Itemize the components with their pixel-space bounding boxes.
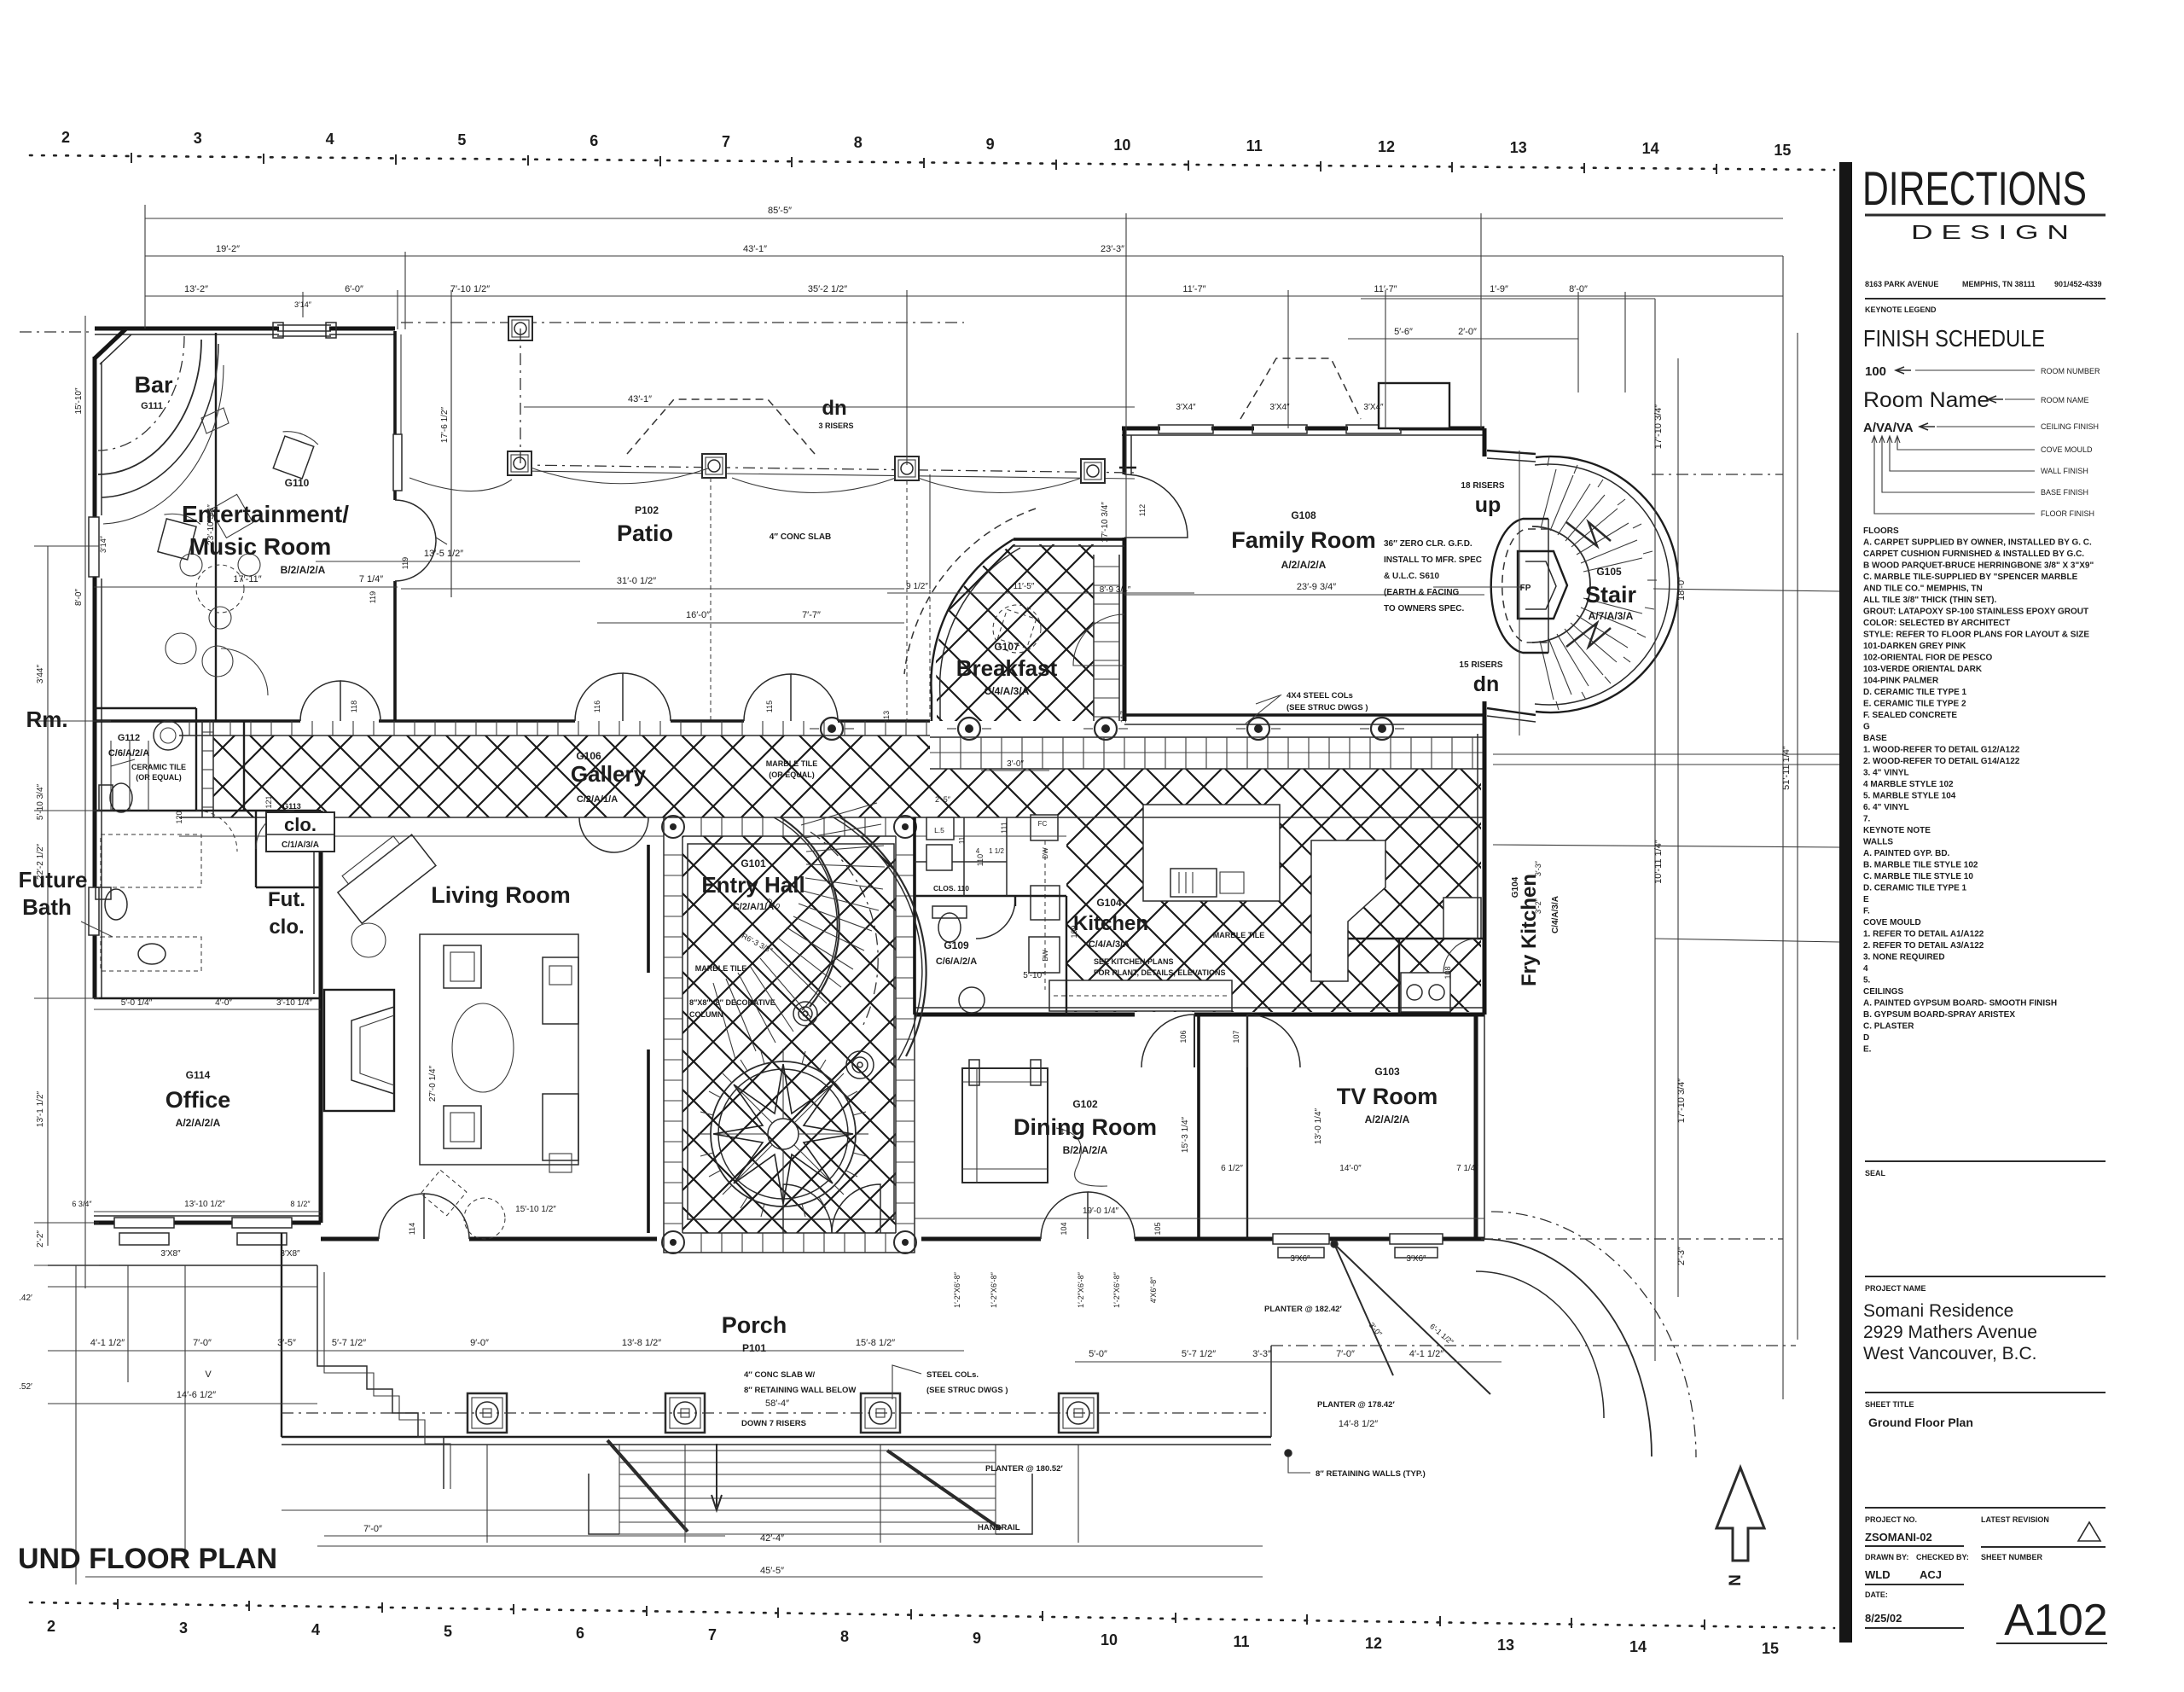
svg-text:Dining Room: Dining Room [1014,1114,1157,1140]
svg-text:11′-5″: 11′-5″ [1014,582,1035,591]
svg-text:LATEST REVISION: LATEST REVISION [1981,1515,2049,1524]
svg-text:13′-0 1/4″: 13′-0 1/4″ [1314,1108,1323,1144]
svg-text:E. CERAMIC TILE TYPE 2: E. CERAMIC TILE TYPE 2 [1863,700,1966,709]
svg-text:3: 3 [194,130,202,147]
svg-text:MEMPHIS, TN 38111: MEMPHIS, TN 38111 [1962,280,2036,288]
svg-text:clo.: clo. [269,916,304,939]
svg-text:2. REFER TO DETAIL A3/A122: 2. REFER TO DETAIL A3/A122 [1863,941,1984,951]
svg-text:WLD: WLD [1865,1568,1891,1581]
svg-text:GROUT: LATAPOXY SP-100 STAINLE: GROUT: LATAPOXY SP-100 STAINLESS EPOXY G… [1863,608,2088,617]
svg-text:DIRECTIONS: DIRECTIONS [1862,161,2087,215]
svg-text:100: 100 [1865,364,1886,379]
svg-text:DW: DW [1042,950,1049,962]
svg-text:3′-10 1/4″: 3′-10 1/4″ [276,998,313,1008]
svg-text:11′-7″: 11′-7″ [1182,284,1205,294]
svg-text:3′X4″: 3′X4″ [1363,403,1384,412]
svg-text:ALL TILE 3/8" THICK (THIN SET): ALL TILE 3/8" THICK (THIN SET). [1863,596,1996,605]
svg-text:G101: G101 [741,858,766,869]
svg-text:(SEE STRUC DWGS ): (SEE STRUC DWGS ) [926,1386,1008,1395]
svg-text:G: G [1863,723,1870,732]
svg-text:MARBLE TILE: MARBLE TILE [695,964,747,973]
svg-text:8 1/2″: 8 1/2″ [290,1200,311,1208]
svg-text:7.: 7. [1863,815,1871,824]
svg-text:8′-0″: 8′-0″ [74,589,84,606]
svg-text:2′-0″: 2′-0″ [1458,327,1477,337]
svg-text:13′-10 1/2″: 13′-10 1/2″ [184,1200,225,1209]
svg-text:WALLS: WALLS [1863,838,1893,847]
svg-text:27′-0 1/4″: 27′-0 1/4″ [428,1065,438,1102]
svg-text:G107: G107 [994,641,1019,653]
svg-text:10: 10 [1101,1631,1118,1648]
svg-text:1′-2″X6′-8″: 1′-2″X6′-8″ [1077,1271,1085,1308]
svg-text:5′-6″: 5′-6″ [1394,327,1413,337]
svg-text:7: 7 [722,133,730,150]
svg-text:13′-1 1/2″: 13′-1 1/2″ [36,1090,45,1127]
svg-text:17′-11″: 17′-11″ [233,574,261,584]
svg-text:F. SEALED CONCRETE: F. SEALED CONCRETE [1863,711,1957,720]
svg-text:SHEET TITLE: SHEET TITLE [1865,1400,1914,1409]
svg-text:INSTALL TO MFR. SPEC: INSTALL TO MFR. SPEC [1384,555,1482,565]
svg-text:9 1/2″: 9 1/2″ [906,582,928,591]
svg-text:2: 2 [47,1618,55,1635]
svg-text:COVE MOULD: COVE MOULD [1863,918,1921,927]
svg-text:5: 5 [444,1623,452,1640]
svg-text:FC: FC [1038,820,1048,828]
svg-text:6 1/2″: 6 1/2″ [1221,1164,1243,1173]
svg-text:4″ CONC SLAB W/: 4″ CONC SLAB W/ [744,1370,816,1380]
svg-text:51′-11 1/4″: 51′-11 1/4″ [1781,746,1792,790]
svg-text:1 1/2: 1 1/2 [989,847,1004,855]
svg-text:up: up [1475,493,1501,517]
svg-text:7′-0″: 7′-0″ [1336,1349,1355,1359]
svg-text:10: 10 [1113,137,1130,154]
svg-text:104-PINK PALMER: 104-PINK PALMER [1863,677,1939,686]
svg-text:9: 9 [973,1630,981,1647]
svg-text:B/2/A/2/A: B/2/A/2/A [1063,1144,1108,1156]
svg-text:B WOOD PARQUET-BRUCE HERRINGB: B WOOD PARQUET-BRUCE HERRINGBONE 3/8" X … [1863,561,2094,571]
svg-text:3′X8″: 3′X8″ [280,1249,300,1259]
svg-text:14′-6 1/2″: 14′-6 1/2″ [177,1390,216,1400]
svg-text:11: 11 [958,836,966,844]
svg-text:6. 4" VINYL: 6. 4" VINYL [1863,803,1909,812]
svg-text:5.: 5. [1863,976,1871,986]
svg-text:A/7/A/3/A: A/7/A/3/A [1589,610,1634,622]
svg-text:108: 108 [1443,966,1452,979]
svg-text:13: 13 [1497,1637,1514,1654]
svg-text:105: 105 [1153,1222,1162,1235]
svg-text:Somani Residence: Somani Residence [1863,1301,2013,1321]
svg-text:G110: G110 [285,477,310,489]
svg-text:17′-6 1/2″: 17′-6 1/2″ [440,406,450,443]
svg-text:13′-2″: 13′-2″ [184,284,208,294]
svg-text:3′-0″: 3′-0″ [1368,1321,1385,1339]
svg-text:8′-9 3/4″: 8′-9 3/4″ [1100,585,1131,595]
svg-text:14: 14 [1629,1638,1647,1655]
svg-text:7 1/4″: 7 1/4″ [1456,1164,1478,1173]
svg-text:116: 116 [593,701,601,712]
svg-text:12: 12 [1365,1635,1382,1652]
svg-text:WALL FINISH: WALL FINISH [2041,467,2088,475]
svg-text:FOR PLANT, DETAILS, ELEVATIONS: FOR PLANT, DETAILS, ELEVATIONS [1094,968,1226,977]
svg-text:C/4/A/3/A: C/4/A/3/A [1551,896,1560,933]
svg-text:CEILINGS: CEILINGS [1863,987,1904,997]
svg-text:3′14″: 3′14″ [99,535,107,553]
svg-text:15′-10 1/2″: 15′-10 1/2″ [515,1205,556,1214]
svg-text:V: V [205,1369,212,1380]
svg-text:114: 114 [408,1223,416,1235]
svg-text:DOWN 7 RISERS: DOWN 7 RISERS [741,1419,806,1428]
svg-text:7′-10 1/2″: 7′-10 1/2″ [450,284,490,294]
svg-text:23′-3″: 23′-3″ [1101,244,1124,254]
svg-text:15: 15 [1762,1640,1779,1657]
svg-text:B. GYPSUM BOARD-SPRAY ARISTEX: B. GYPSUM BOARD-SPRAY ARISTEX [1863,1010,2015,1020]
svg-text:14: 14 [1642,140,1659,157]
svg-text:FLOOR FINISH: FLOOR FINISH [2041,509,2094,518]
svg-text:Patio: Patio [617,520,673,546]
svg-text:6′-0″: 6′-0″ [345,284,363,294]
svg-text:19′-0 1/4″: 19′-0 1/4″ [1083,1206,1119,1216]
svg-text:A. PAINTED GYPSUM BOARD- SMOOT: A. PAINTED GYPSUM BOARD- SMOOTH FINISH [1863,999,2057,1009]
svg-text:3′-3″: 3′-3″ [1252,1349,1271,1359]
svg-text:7′-0″: 7′-0″ [193,1338,212,1348]
svg-text:2929 Mathers Avenue: 2929 Mathers Avenue [1863,1323,2037,1342]
svg-text:3′-5″: 3′-5″ [277,1338,296,1348]
svg-text:3′44″: 3′44″ [36,664,45,683]
svg-text:7′-0″: 7′-0″ [363,1524,382,1534]
svg-text:C/4/A/3/A: C/4/A/3/A [985,685,1030,697]
svg-text:6 3/4″: 6 3/4″ [72,1200,92,1208]
svg-text:PROJECT NO.: PROJECT NO. [1865,1515,1917,1524]
svg-text:A/2/A/2/A: A/2/A/2/A [1365,1113,1410,1125]
svg-text:5′-7 1/2″: 5′-7 1/2″ [1182,1349,1216,1359]
svg-text:15′-3 1/4″: 15′-3 1/4″ [1181,1116,1190,1153]
svg-text:G109: G109 [944,939,969,951]
svg-text:BASE: BASE [1863,734,1887,743]
svg-text:ROOM NUMBER: ROOM NUMBER [2041,367,2100,375]
svg-text:13′-5 1/2″: 13′-5 1/2″ [424,549,463,559]
svg-text:TO OWNERS SPEC.: TO OWNERS SPEC. [1384,604,1464,613]
svg-text:C/4/A/3/A: C/4/A/3/A [1089,939,1130,950]
svg-text:2′-3″: 2′-3″ [1676,1247,1687,1265]
svg-text:1. REFER TO DETAIL A1/A122: 1. REFER TO DETAIL A1/A122 [1863,930,1984,939]
svg-text:Entertainment/: Entertainment/ [182,501,349,527]
svg-text:(OR EQUAL): (OR EQUAL) [769,770,815,779]
svg-text:clo.: clo. [284,814,317,835]
svg-text:G104: G104 [1511,876,1520,898]
svg-text:G108: G108 [1291,509,1316,521]
svg-text:ROOM NAME: ROOM NAME [2041,396,2089,404]
svg-text:F.: F. [1863,907,1870,916]
svg-text:Bar: Bar [134,372,173,398]
svg-text:G111: G111 [141,401,163,411]
svg-text:58′-4″: 58′-4″ [765,1398,789,1409]
svg-text:3′X6″: 3′X6″ [1290,1254,1310,1264]
svg-text:(SEE STRUC DWGS ): (SEE STRUC DWGS ) [1287,703,1368,712]
svg-text:A/VA/VA: A/VA/VA [1863,421,1914,435]
svg-text:West Vancouver, B.C.: West Vancouver, B.C. [1863,1344,2036,1363]
svg-text:FLOORS: FLOORS [1863,526,1899,536]
svg-text:16′-0″: 16′-0″ [686,610,710,620]
svg-text:C/2/A/1/A: C/2/A/1/A [577,794,618,805]
svg-text:4′-0″: 4′-0″ [215,998,232,1008]
svg-text:106: 106 [1179,1030,1188,1043]
svg-text:G106: G106 [576,750,601,762]
svg-text:118: 118 [350,701,358,712]
svg-text:G104: G104 [1096,897,1122,909]
svg-text:2: 2 [61,129,70,146]
svg-text:110: 110 [976,854,985,866]
svg-text:G105: G105 [1596,566,1622,578]
svg-text:A. PAINTED GYP. BD.: A. PAINTED GYP. BD. [1863,849,1950,858]
svg-text:5′-10 3/4″: 5′-10 3/4″ [36,783,45,820]
svg-text:14′-8 1/2″: 14′-8 1/2″ [1339,1419,1378,1429]
svg-text:COLOR: SELECTED BY ARCHITECT: COLOR: SELECTED BY ARCHITECT [1863,619,2010,628]
svg-text:A102: A102 [2004,1596,2107,1645]
svg-text:15′-8 1/2″: 15′-8 1/2″ [856,1338,895,1348]
svg-text:11: 11 [1246,137,1263,154]
svg-text:45′-5″: 45′-5″ [760,1566,784,1576]
svg-text:43′-1″: 43′-1″ [743,244,767,254]
svg-text:Porch: Porch [722,1312,787,1338]
svg-text:CARPET CUSHION FURNISHED & INS: CARPET CUSHION FURNISHED & INSTALLED BY … [1863,549,2084,559]
svg-text:102-ORIENTAL FIOR DE PESCO: 102-ORIENTAL FIOR DE PESCO [1863,654,1993,663]
svg-text:Fry Kitchen: Fry Kitchen [1518,874,1541,986]
svg-text:DATE:: DATE: [1865,1590,1888,1599]
svg-text:N: N [1727,1574,1745,1586]
svg-text:Office: Office [166,1087,231,1113]
svg-text:& U.L.C. S610: & U.L.C. S610 [1384,572,1439,581]
svg-text:17′-10 3/4″: 17′-10 3/4″ [1653,404,1664,450]
svg-text:13′-8 1/2″: 13′-8 1/2″ [622,1338,661,1348]
svg-text:Bath: Bath [22,894,72,920]
svg-text:5. MARBLE STYLE 104: 5. MARBLE STYLE 104 [1863,792,1956,801]
svg-text:42′-4″: 42′-4″ [760,1533,784,1544]
svg-text:14′-0″: 14′-0″ [1339,1164,1362,1173]
svg-text:Living Room: Living Room [431,882,571,908]
svg-text:D. CERAMIC TILE TYPE 1: D. CERAMIC TILE TYPE 1 [1863,688,1967,697]
svg-text:FP: FP [1520,584,1531,593]
svg-text:SHEET NUMBER: SHEET NUMBER [1981,1553,2043,1561]
svg-text:B. MARBLE TILE STYLE 102: B. MARBLE TILE STYLE 102 [1863,861,1978,870]
svg-text:TV Room: TV Room [1337,1084,1438,1109]
svg-text:4: 4 [976,847,980,855]
svg-text:Entry Hall: Entry Hall [701,872,804,898]
svg-text:ACJ: ACJ [1920,1568,1942,1581]
svg-text:23′-9 3/4″: 23′-9 3/4″ [1297,582,1336,592]
svg-text:3: 3 [179,1619,188,1637]
svg-text:UND FLOOR PLAN: UND FLOOR PLAN [18,1543,277,1575]
svg-text:1′-2″X6′-8″: 1′-2″X6′-8″ [1112,1271,1121,1308]
svg-text:4 MARBLE STYLE 102: 4 MARBLE STYLE 102 [1863,780,1954,789]
svg-text:P101: P101 [742,1342,766,1354]
svg-text:PLANTER @ 180.52′: PLANTER @ 180.52′ [985,1464,1063,1474]
svg-text:C/2/A/1/A: C/2/A/1/A [733,902,774,912]
svg-text:4′-1 1/2″: 4′-1 1/2″ [1409,1349,1443,1359]
svg-text:CERAMIC TILE: CERAMIC TILE [131,763,186,771]
svg-text:113: 113 [882,711,891,723]
svg-text:C. MARBLE TILE STYLE 10: C. MARBLE TILE STYLE 10 [1863,872,1973,881]
svg-text:4X4 STEEL COLs: 4X4 STEEL COLs [1287,691,1353,701]
svg-text:CHECKED BY:: CHECKED BY: [1916,1553,1969,1561]
svg-text:Fut.: Fut. [268,888,305,911]
svg-text:D. CERAMIC TILE TYPE 1: D. CERAMIC TILE TYPE 1 [1863,884,1967,893]
svg-text:dn: dn [1473,672,1500,696]
svg-text:111: 111 [1000,822,1008,834]
svg-text:2. WOOD-REFER TO DETAIL G14/A1: 2. WOOD-REFER TO DETAIL G14/A122 [1863,757,2020,766]
svg-text:KEYNOTE NOTE: KEYNOTE NOTE [1863,826,1931,835]
svg-text:19′-2″: 19′-2″ [216,244,240,254]
svg-text:dn: dn [822,397,846,420]
svg-text:STEEL COLs.: STEEL COLs. [926,1370,979,1380]
svg-text:(EARTH & FACING: (EARTH & FACING [1384,588,1460,597]
svg-text:4: 4 [326,131,334,148]
svg-text:Gallery: Gallery [571,761,647,787]
svg-text:1′-2″X6′-8″: 1′-2″X6′-8″ [953,1271,961,1308]
svg-text:A/2/A/2/A: A/2/A/2/A [176,1117,221,1129]
svg-text:8: 8 [840,1628,849,1645]
svg-text:13: 13 [1510,139,1527,156]
svg-text:3 RISERS: 3 RISERS [818,422,853,430]
svg-text:85′-5″: 85′-5″ [768,206,792,216]
svg-text:901/452-4339: 901/452-4339 [2054,280,2102,288]
svg-text:17′-10 3/4″: 17′-10 3/4″ [1101,502,1110,543]
svg-text:AND TILE CO." MEMPHIS, TN: AND TILE CO." MEMPHIS, TN [1863,584,1983,594]
svg-text:7 1/4″: 7 1/4″ [359,574,383,584]
svg-text:2′-5″: 2′-5″ [935,795,951,804]
svg-text:4″ CONC SLAB: 4″ CONC SLAB [770,532,832,542]
svg-text:9′-0″: 9′-0″ [470,1338,489,1348]
svg-text:KEYNOTE LEGEND: KEYNOTE LEGEND [1865,305,1937,314]
svg-text:Rm.: Rm. [26,706,67,732]
svg-text:8″ RETAINING WALL BELOW: 8″ RETAINING WALL BELOW [744,1386,856,1395]
svg-text:3′X8″: 3′X8″ [160,1249,181,1259]
svg-text:SEAL: SEAL [1865,1169,1886,1177]
svg-text:115: 115 [765,701,774,712]
svg-text:G114: G114 [186,1069,211,1081]
svg-text:15: 15 [1774,142,1791,159]
svg-text:11: 11 [1233,1633,1249,1650]
svg-text:Music Room: Music Room [189,533,331,560]
svg-text:A/2/A/2/A: A/2/A/2/A [1281,559,1327,571]
svg-text:3. 4" VINYL: 3. 4" VINYL [1863,769,1909,778]
svg-text:109: 109 [1070,925,1078,938]
svg-text:6′-1 1/2″: 6′-1 1/2″ [1428,1322,1455,1346]
svg-text:10′-11 1/4″: 10′-11 1/4″ [1653,840,1664,884]
svg-text:36″ ZERO CLR. G.F.D.: 36″ ZERO CLR. G.F.D. [1384,539,1472,549]
svg-text:31′-0 1/2″: 31′-0 1/2″ [617,576,656,586]
svg-text:5′-0 1/4″: 5′-0 1/4″ [121,998,153,1008]
svg-text:8: 8 [854,134,863,151]
svg-text:Breakfast: Breakfast [956,655,1058,681]
svg-text:3′X6″: 3′X6″ [1406,1254,1426,1264]
svg-text:A. CARPET SUPPLIED BY OWNER, I: A. CARPET SUPPLIED BY OWNER, INSTALLED B… [1863,538,2092,548]
svg-text:3′-0″: 3′-0″ [1007,759,1024,769]
svg-text:8″ RETAINING WALLS (TYP.): 8″ RETAINING WALLS (TYP.) [1316,1469,1426,1479]
svg-text:PROJECT NAME: PROJECT NAME [1865,1284,1926,1293]
svg-text:103-VERDE ORIENTAL DARK: 103-VERDE ORIENTAL DARK [1863,665,1983,674]
svg-text:SEE KITCHEN PLANS: SEE KITCHEN PLANS [1094,957,1174,966]
svg-text:CLOS. 110: CLOS. 110 [933,884,969,893]
svg-text:MARBLE TILE: MARBLE TILE [766,759,818,768]
svg-text:MARBLE TILE: MARBLE TILE [1213,931,1265,939]
svg-text:(OR EQUAL): (OR EQUAL) [136,773,182,782]
svg-text:C. PLASTER: C. PLASTER [1863,1022,1914,1032]
svg-text:C/6/A/2/A: C/6/A/2/A [108,748,149,759]
svg-text:E.: E. [1863,1045,1872,1055]
svg-text:119: 119 [369,591,377,603]
svg-text:5: 5 [457,131,466,148]
svg-text:6: 6 [576,1625,584,1642]
svg-text:.42′: .42′ [19,1294,32,1303]
svg-text:CEILING FINISH: CEILING FINISH [2041,422,2099,431]
svg-text:4′X6′-8″: 4′X6′-8″ [1149,1276,1158,1303]
svg-text:ZSOMANI-02: ZSOMANI-02 [1865,1531,1932,1544]
svg-text:C. MARBLE TILE-SUPPLIED BY "SP: C. MARBLE TILE-SUPPLIED BY "SPENCER MARB… [1863,573,2078,582]
svg-text:15′-10″: 15′-10″ [74,387,84,414]
svg-text:G113: G113 [282,802,301,811]
svg-text:18′-0″: 18′-0″ [1676,577,1687,601]
svg-text:Kitchen: Kitchen [1073,912,1148,935]
svg-text:.52′: .52′ [19,1382,32,1392]
svg-text:4: 4 [1863,964,1868,974]
svg-text:COLUMN: COLUMN [689,1010,723,1019]
svg-text:3′X4″: 3′X4″ [1176,403,1196,412]
svg-text:117: 117 [1119,711,1128,723]
svg-text:HANDRAIL: HANDRAIL [978,1523,1020,1532]
svg-text:PLANTER @ 182.42′: PLANTER @ 182.42′ [1264,1305,1342,1314]
svg-text:18 RISERS: 18 RISERS [1461,481,1504,491]
svg-text:17′-10 3/4″: 17′-10 3/4″ [1676,1079,1687,1124]
svg-text:7′-7″: 7′-7″ [802,610,821,620]
svg-text:Room Name: Room Name [1863,388,1989,412]
svg-text:5′-10″: 5′-10″ [1023,971,1045,980]
svg-text:FINISH SCHEDULE: FINISH SCHEDULE [1863,325,2045,352]
svg-text:C/6/A/2/A: C/6/A/2/A [936,956,977,967]
svg-text:101-DARKEN GREY PINK: 101-DARKEN GREY PINK [1863,642,1966,651]
svg-text:G112: G112 [118,733,140,743]
svg-text:43′-1″: 43′-1″ [628,394,652,404]
svg-text:G103: G103 [1374,1066,1400,1078]
svg-text:DRAWN BY:: DRAWN BY: [1865,1553,1908,1561]
svg-text:Family Room: Family Room [1231,527,1376,553]
svg-text:7: 7 [708,1626,717,1643]
svg-text:Ground Floor Plan: Ground Floor Plan [1868,1416,1973,1429]
svg-text:E: E [1863,895,1869,904]
svg-text:8/25/02: 8/25/02 [1865,1612,1902,1625]
svg-text:BASE FINISH: BASE FINISH [2041,488,2088,497]
svg-text:G102: G102 [1072,1098,1098,1110]
svg-text:1. WOOD-REFER TO DETAIL G12/A1: 1. WOOD-REFER TO DETAIL G12/A122 [1863,746,2020,755]
svg-text:107: 107 [1232,1030,1240,1043]
svg-text:D E S I G N: D E S I G N [1911,221,2069,243]
svg-text:119: 119 [401,557,409,569]
svg-text:L.5: L.5 [934,826,944,834]
svg-text:STYLE: REFER TO FLOOR PLANS FO: STYLE: REFER TO FLOOR PLANS FOR LAYOUT &… [1863,631,2089,640]
svg-text:COVE MOULD: COVE MOULD [2041,445,2093,454]
svg-text:104: 104 [1060,1222,1068,1235]
svg-text:3. NONE REQUIRED: 3. NONE REQUIRED [1863,953,1945,962]
svg-text:5′-0″: 5′-0″ [1089,1349,1107,1359]
svg-text:9: 9 [986,136,995,153]
svg-text:1′-2″X6′-8″: 1′-2″X6′-8″ [990,1271,998,1308]
svg-text:Future: Future [19,867,88,893]
svg-text:C/1/A/3/A: C/1/A/3/A [282,840,319,850]
svg-text:112: 112 [1138,504,1147,516]
svg-text:DW: DW [1042,847,1049,859]
svg-text:P102: P102 [635,504,659,516]
svg-text:PLANTER @ 178.42′: PLANTER @ 178.42′ [1317,1400,1395,1410]
svg-text:35′-2 1/2″: 35′-2 1/2″ [808,284,847,294]
